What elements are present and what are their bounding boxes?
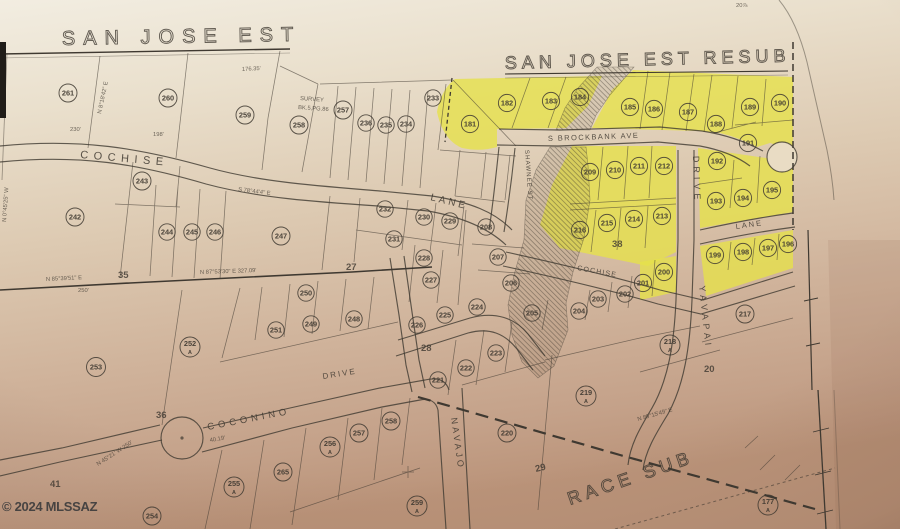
svg-text:183: 183 (545, 97, 557, 106)
svg-text:247: 247 (275, 232, 287, 241)
svg-text:215: 215 (601, 219, 613, 228)
svg-text:197: 197 (762, 244, 774, 253)
svg-text:A: A (415, 509, 419, 515)
svg-text:250: 250 (300, 289, 312, 298)
section-number: 41 (50, 479, 61, 490)
svg-text:232: 232 (379, 205, 391, 214)
svg-text:221: 221 (432, 376, 444, 385)
svg-text:248: 248 (348, 315, 360, 324)
svg-text:177: 177 (762, 497, 774, 506)
annotation-dimension: 250' (78, 288, 89, 294)
svg-text:206: 206 (505, 279, 517, 288)
svg-text:222: 222 (460, 364, 472, 373)
svg-text:234: 234 (400, 120, 413, 129)
annotation-dimension: 198' (153, 132, 164, 138)
svg-text:252: 252 (184, 339, 196, 348)
svg-text:265: 265 (277, 468, 289, 477)
svg-text:257: 257 (337, 106, 349, 115)
svg-text:185: 185 (624, 103, 636, 112)
svg-text:246: 246 (209, 228, 221, 237)
svg-text:199: 199 (709, 251, 721, 260)
section-number: 35 (118, 270, 129, 281)
svg-text:224: 224 (471, 303, 484, 312)
svg-text:A: A (188, 350, 192, 356)
svg-text:184: 184 (574, 93, 587, 102)
svg-text:245: 245 (186, 228, 198, 237)
svg-text:254: 254 (146, 512, 159, 521)
svg-text:190: 190 (774, 99, 786, 108)
svg-text:188: 188 (710, 120, 722, 129)
svg-text:231: 231 (388, 235, 400, 244)
svg-text:227: 227 (425, 276, 437, 285)
svg-text:220: 220 (501, 429, 513, 438)
svg-text:228: 228 (418, 254, 430, 263)
svg-text:233: 233 (427, 94, 439, 103)
svg-text:182: 182 (501, 99, 513, 108)
svg-text:187: 187 (682, 108, 694, 117)
annotation-dimension: 176.35' (242, 66, 261, 73)
svg-text:223: 223 (490, 349, 502, 358)
svg-text:A: A (668, 348, 672, 354)
svg-text:208: 208 (480, 223, 492, 232)
svg-text:A: A (766, 508, 770, 514)
svg-text:200: 200 (658, 268, 670, 277)
svg-text:214: 214 (628, 215, 641, 224)
svg-text:211: 211 (633, 162, 645, 171)
svg-text:258: 258 (385, 417, 397, 426)
svg-text:A: A (584, 399, 588, 405)
svg-text:255: 255 (228, 479, 240, 488)
svg-text:A: A (232, 490, 236, 496)
title-san-jose-est: SAN JOSE EST (62, 24, 302, 50)
svg-text:226: 226 (411, 321, 423, 330)
svg-text:257: 257 (353, 429, 365, 438)
svg-text:259: 259 (239, 111, 251, 120)
svg-text:259: 259 (411, 498, 423, 507)
svg-text:244: 244 (161, 228, 174, 237)
svg-text:193: 193 (710, 197, 722, 206)
svg-text:213: 213 (656, 212, 668, 221)
svg-text:253: 253 (90, 363, 102, 372)
svg-text:236: 236 (360, 119, 372, 128)
svg-text:209: 209 (584, 168, 596, 177)
svg-text:218: 218 (664, 337, 676, 346)
svg-text:243: 243 (136, 177, 148, 186)
svg-text:A: A (328, 450, 332, 456)
svg-text:201: 201 (637, 279, 649, 288)
mls-watermark: © 2024 MLSSAZ (2, 499, 98, 514)
svg-text:225: 225 (439, 311, 451, 320)
annotation-dimension: 230' (70, 127, 81, 133)
svg-text:210: 210 (609, 166, 621, 175)
section-number: 28 (421, 343, 432, 354)
svg-text:235: 235 (380, 121, 392, 130)
svg-text:191: 191 (742, 139, 754, 148)
svg-text:192: 192 (711, 157, 723, 166)
scan-edge-bar (0, 42, 6, 118)
svg-text:260: 260 (162, 94, 174, 103)
svg-text:216: 216 (574, 226, 586, 235)
section-number: 20 (704, 364, 715, 375)
svg-text:196: 196 (782, 240, 794, 249)
svg-text:203: 203 (592, 295, 604, 304)
section-number: 38 (612, 239, 623, 250)
svg-text:195: 195 (766, 186, 778, 195)
street-label-yavapai-drive: DRIVE (691, 156, 703, 204)
svg-text:212: 212 (658, 162, 670, 171)
section-number: 36 (156, 410, 167, 421)
svg-text:205: 205 (526, 309, 538, 318)
svg-text:186: 186 (648, 105, 660, 114)
svg-text:202: 202 (619, 290, 631, 299)
svg-text:204: 204 (573, 307, 586, 316)
svg-text:189: 189 (744, 103, 756, 112)
plat-map-canvas: SAN JOSE EST SAN JOSE EST RESUB RACE SUB… (0, 0, 900, 529)
svg-text:242: 242 (69, 213, 81, 222)
page-note: 20⅞ (736, 3, 747, 9)
svg-text:258: 258 (293, 121, 305, 130)
svg-text:256: 256 (324, 439, 336, 448)
svg-text:249: 249 (305, 320, 317, 329)
svg-text:198: 198 (737, 248, 749, 257)
svg-text:230: 230 (418, 213, 430, 222)
svg-text:181: 181 (464, 120, 476, 129)
svg-text:219: 219 (580, 388, 592, 397)
plat-map-photo: SAN JOSE EST SAN JOSE EST RESUB RACE SUB… (0, 0, 900, 529)
svg-text:207: 207 (492, 253, 504, 262)
section-number: 27 (346, 262, 357, 273)
svg-text:229: 229 (444, 217, 456, 226)
svg-text:194: 194 (737, 194, 750, 203)
svg-text:261: 261 (62, 89, 74, 98)
svg-text:217: 217 (739, 310, 751, 319)
svg-text:251: 251 (270, 326, 282, 335)
